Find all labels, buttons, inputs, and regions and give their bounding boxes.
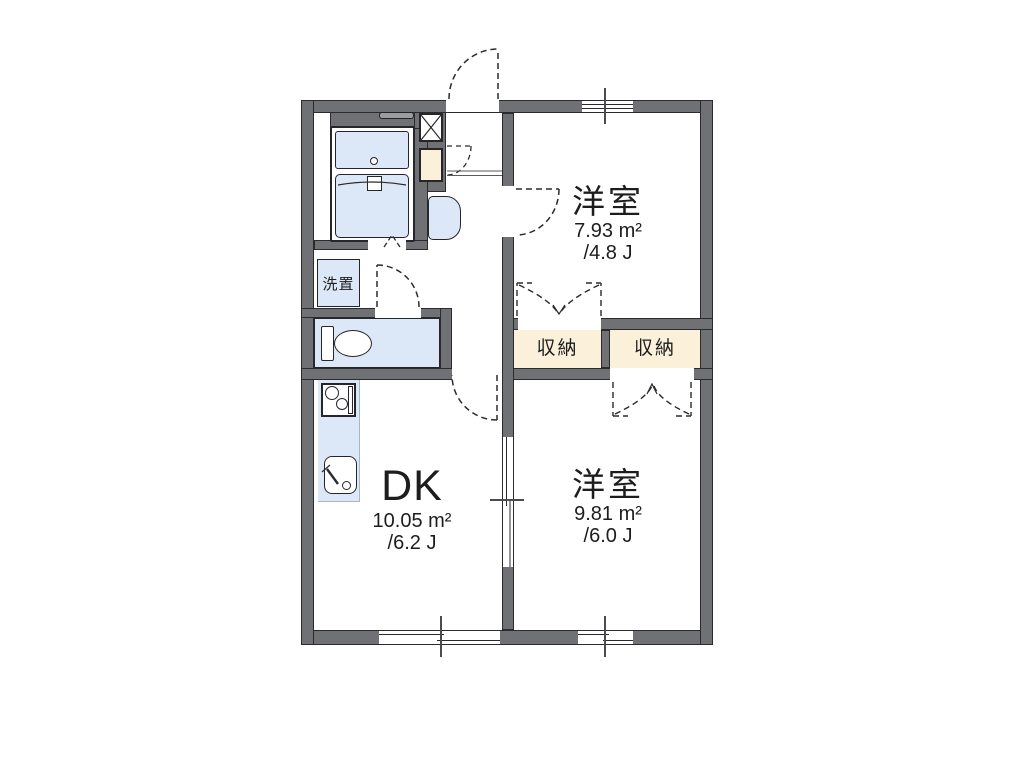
closet-right-label: 収納 <box>610 336 700 362</box>
entrance-opening <box>446 100 499 113</box>
dk-name: DK <box>312 462 512 510</box>
dk-area: 10.05 m² <box>312 510 512 532</box>
closet-left-folding-doors <box>517 283 601 316</box>
wall-outer-bottom <box>301 630 713 645</box>
laundry-space-box: 洗置 <box>317 259 360 307</box>
closet-right-folding-doors <box>613 382 691 416</box>
room-bottom-tatami: /6.0 J <box>510 525 706 547</box>
closet-left-label: 収納 <box>514 336 601 362</box>
room-bottom-label: 洋室 9.81 m² /6.0 J <box>510 466 706 547</box>
closet-left-door-vmark <box>553 305 565 314</box>
window-dk-bottom <box>379 630 500 645</box>
toilet-door-opening <box>375 308 421 318</box>
heater-door-swing <box>447 146 471 175</box>
stove-grill <box>348 386 353 414</box>
toilet-door-swing <box>377 265 419 307</box>
vanity-drain <box>370 157 378 165</box>
wash-basin <box>428 196 461 240</box>
pipe-space-box <box>419 113 443 142</box>
bathtub-tap <box>367 176 382 191</box>
room-top-label: 洋室 7.93 m² /4.8 J <box>510 183 706 264</box>
closet-right-door-vmark <box>647 384 657 394</box>
wall-closet-divider <box>601 330 610 368</box>
closet-top-opening <box>518 318 601 330</box>
vent-slot <box>379 112 414 119</box>
room-top-area: 7.93 m² <box>510 220 706 242</box>
water-heater-box <box>419 148 443 182</box>
stove-burner-small <box>336 398 348 410</box>
dk-tatami: /6.2 J <box>312 532 512 554</box>
stove-burner-large <box>325 386 339 400</box>
toilet-tank <box>321 326 334 361</box>
floor-plan-canvas: 洗置 <box>0 0 1016 772</box>
room-top-tatami: /4.8 J <box>510 242 706 264</box>
room-bottom-area: 9.81 m² <box>510 503 706 525</box>
dk-door-opening <box>452 368 502 380</box>
closet-bottom-opening <box>610 368 694 380</box>
room-bottom-name: 洋室 <box>510 466 706 503</box>
dk-label: DK 10.05 m² /6.2 J <box>312 462 512 554</box>
dk-door-swing <box>452 375 497 420</box>
wall-bath-right <box>414 128 428 250</box>
laundry-label: 洗置 <box>322 273 354 294</box>
window-bottom-room <box>578 630 633 645</box>
bath-door-opening <box>368 240 406 250</box>
genkan-step-line <box>447 171 502 176</box>
window-top-room <box>582 100 633 113</box>
room-top-name: 洋室 <box>510 183 706 220</box>
toilet-bowl <box>334 330 372 357</box>
entrance-door-swing <box>449 49 498 99</box>
